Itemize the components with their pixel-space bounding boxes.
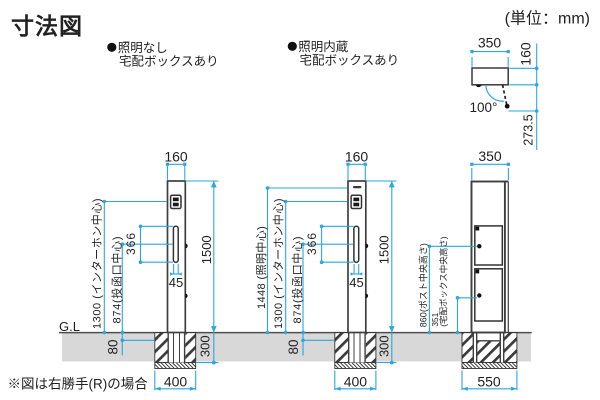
svg-text:160: 160: [518, 42, 534, 66]
svg-text:1448 (照明中心): 1448 (照明中心): [255, 226, 268, 309]
svg-text:宅配ボックスあり: 宅配ボックスあり: [119, 54, 219, 69]
svg-text:寸法図: 寸法図: [11, 13, 83, 39]
svg-text:45: 45: [349, 275, 363, 290]
svg-text:照明内蔵: 照明内蔵: [298, 40, 349, 54]
svg-text:350: 350: [478, 35, 502, 51]
svg-text:366: 366: [124, 232, 138, 255]
svg-text:860(ポスト中央高さ): 860(ポスト中央高さ): [418, 243, 429, 327]
svg-text:1500: 1500: [377, 235, 392, 264]
svg-text:874(投函口中心): 874(投函口中心): [290, 236, 304, 324]
svg-text:160: 160: [164, 148, 188, 164]
svg-text:45: 45: [169, 275, 183, 290]
svg-text:273.5: 273.5: [522, 114, 536, 145]
svg-text:300: 300: [377, 335, 392, 357]
svg-text:照明なし: 照明なし: [118, 41, 168, 55]
svg-text:(単位：mm): (単位：mm): [505, 10, 590, 28]
svg-text:300: 300: [197, 335, 212, 357]
svg-text:※図は右勝手(R)の場合: ※図は右勝手(R)の場合: [8, 377, 149, 392]
svg-text:366: 366: [305, 232, 319, 255]
svg-text:874(投函口中心): 874(投函口中心): [109, 236, 123, 324]
svg-text:550: 550: [477, 373, 501, 389]
svg-text:400: 400: [164, 373, 188, 389]
svg-text:宅配ボックスあり: 宅配ボックスあり: [300, 53, 400, 68]
svg-text:350: 350: [478, 148, 502, 164]
svg-text:1500: 1500: [199, 235, 214, 264]
svg-text:1300 (インターホン中心): 1300 (インターホン中心): [272, 198, 285, 329]
svg-text:160: 160: [345, 148, 369, 164]
svg-text:(宅配ボックス中央高さ): (宅配ボックス中央高さ): [438, 236, 448, 327]
svg-text:400: 400: [344, 373, 368, 389]
svg-text:1300 (インターホン中心): 1300 (インターホン中心): [91, 198, 104, 329]
svg-text:100°: 100°: [470, 100, 498, 115]
svg-text:G.L: G.L: [59, 319, 80, 334]
svg-text:80: 80: [286, 339, 301, 354]
svg-text:80: 80: [105, 339, 120, 354]
